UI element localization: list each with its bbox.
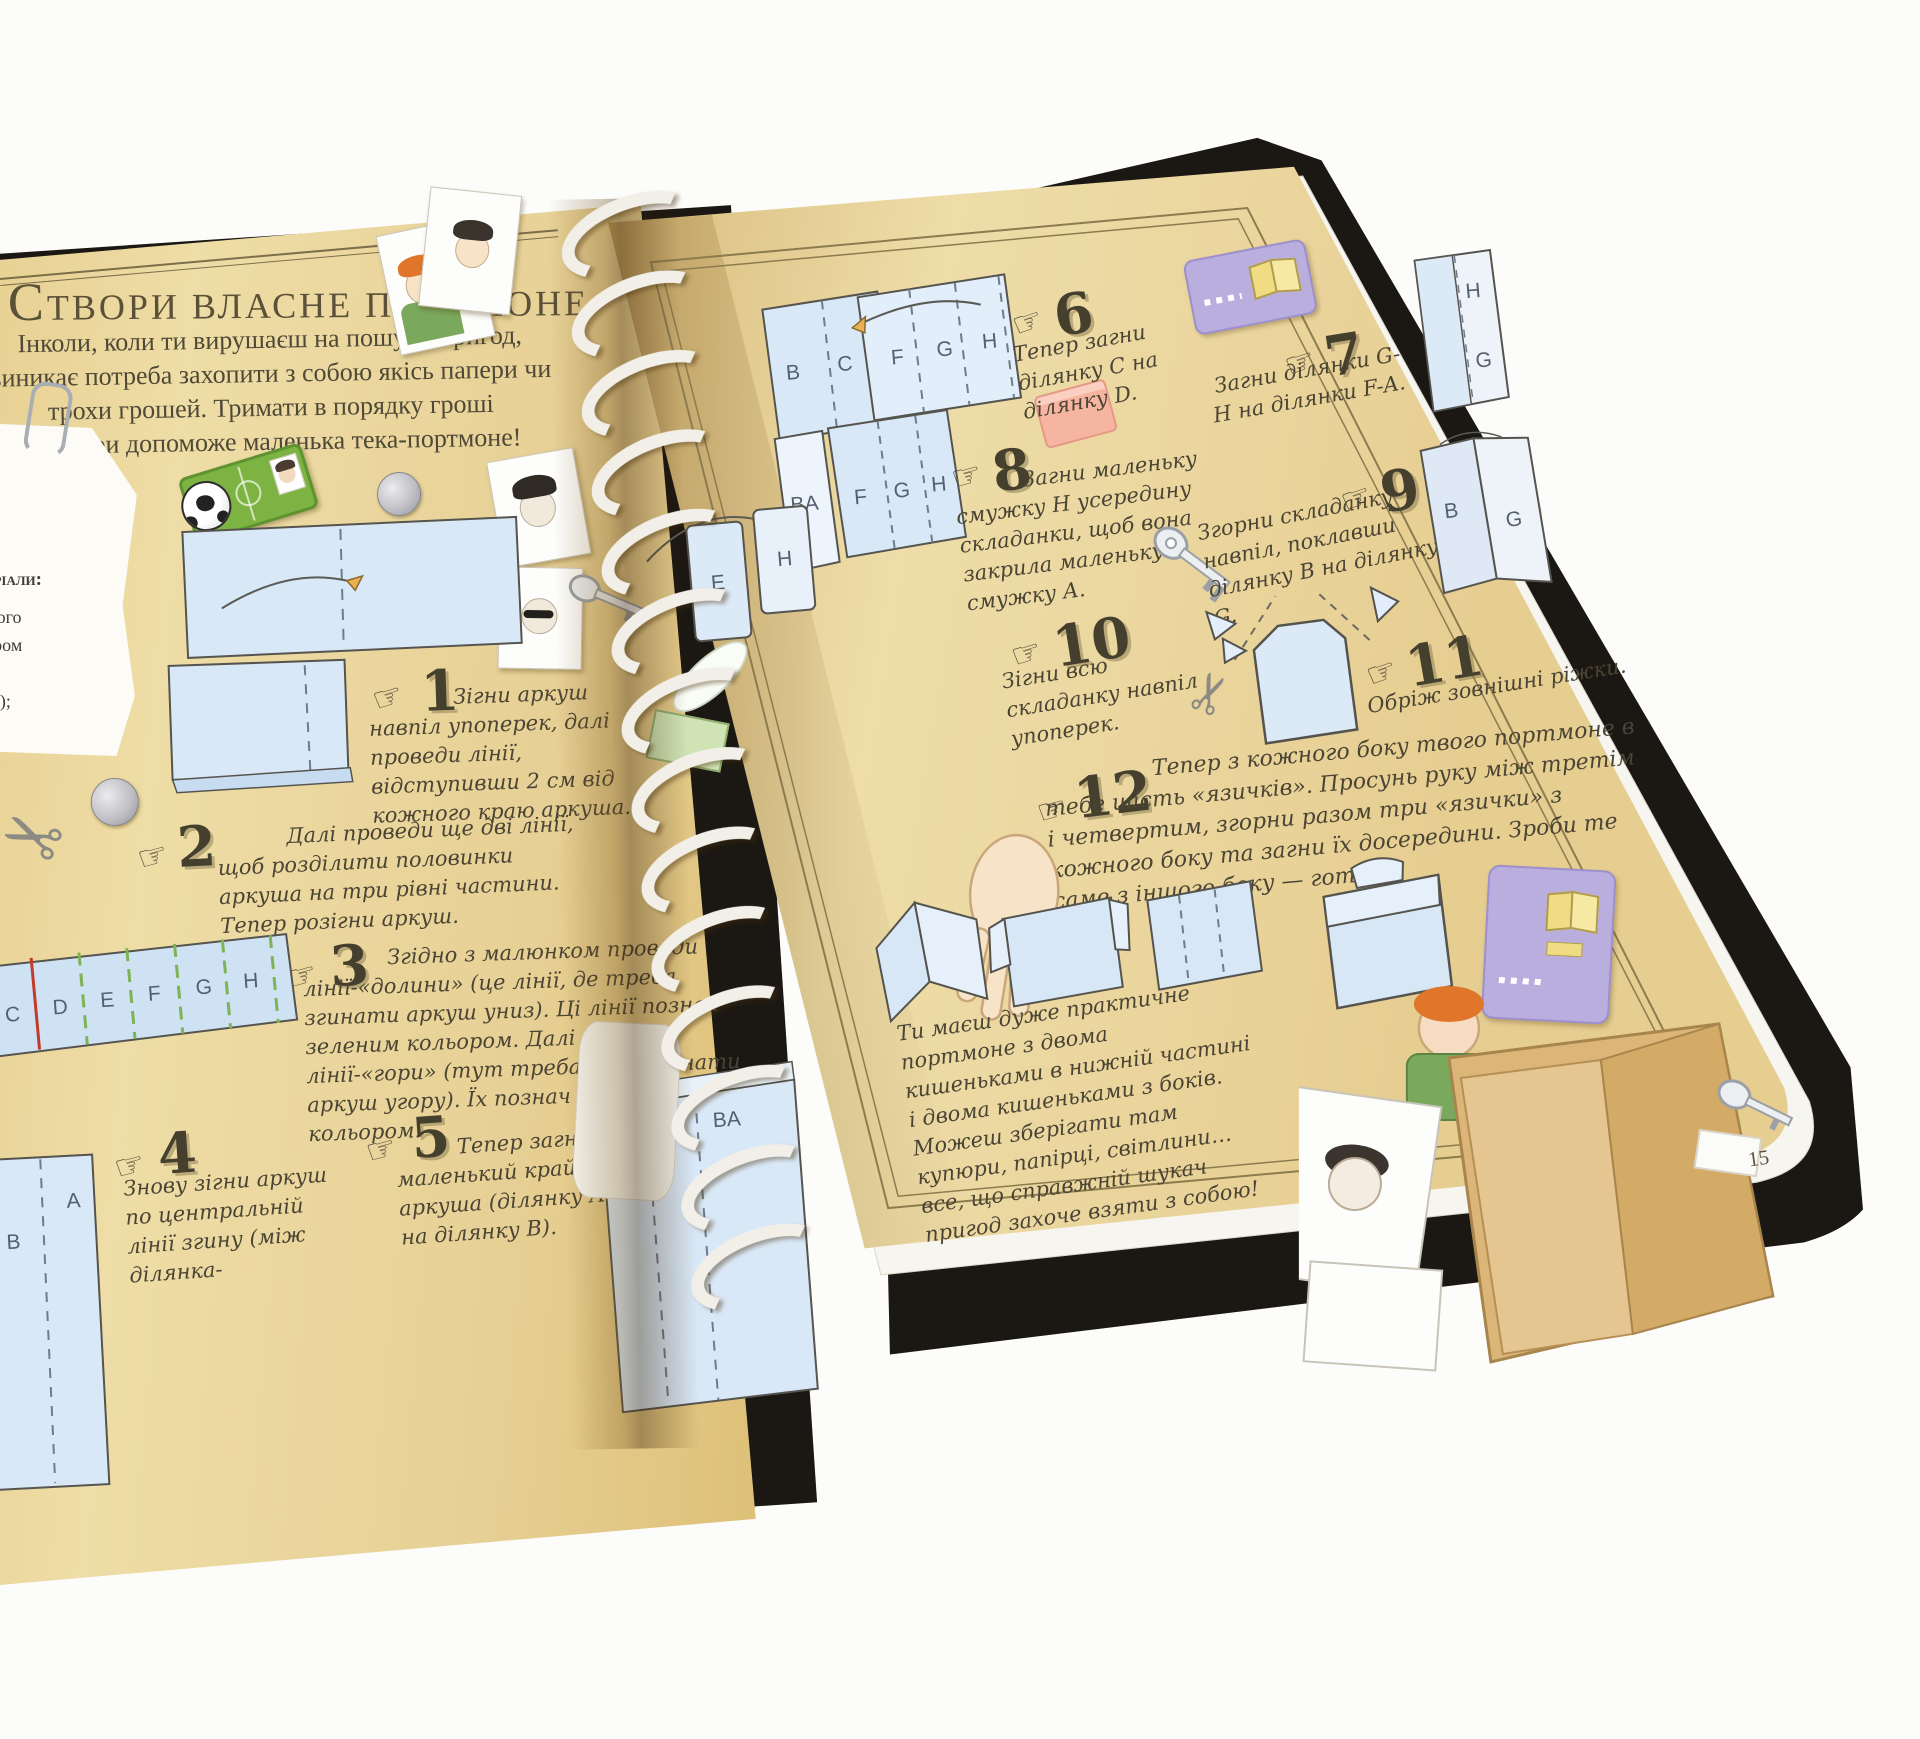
materials-note-paper: Матеріали: товстого розміром (чи 1 посте…	[0, 421, 137, 756]
step4-text: Знову зігни аркуш по центральній лінії з…	[122, 1160, 345, 1291]
outro-paragraph: Ти маєш дуже практичне портмоне з двома …	[895, 971, 1274, 1249]
yellow-strip-doodle	[1546, 941, 1583, 957]
step2-number: 2	[176, 818, 218, 876]
step1-diagram	[178, 511, 529, 667]
strip-letter: D	[52, 996, 69, 1020]
sunglasses-icon	[523, 610, 553, 619]
diagram-letter: B	[6, 1230, 21, 1254]
photo-card	[418, 186, 522, 315]
materials-line: розміром	[0, 635, 22, 656]
diagram-letter: H	[930, 472, 947, 496]
ball-patch	[216, 509, 231, 524]
strip-letter: G	[195, 975, 213, 999]
card-dots	[1204, 293, 1242, 306]
book-photo: { "book": { "title": "Створи власне порт…	[0, 0, 1920, 1280]
diagram-letter: G	[936, 337, 954, 361]
diagram-letter: B	[785, 361, 801, 385]
diagram-letter: G	[893, 479, 911, 503]
materials-line: товстого	[0, 607, 22, 628]
step2-diagram	[164, 655, 364, 797]
diagram-letter: H	[776, 547, 793, 571]
open-book-doodle	[1570, 891, 1600, 934]
diagram-letter: B	[1443, 499, 1460, 524]
strip-letter: H	[243, 969, 260, 993]
fold-lines-strip-diagram: C D E F G H	[0, 931, 305, 1087]
diagram-letter: A	[66, 1189, 81, 1213]
open-book: Створи власне портмоне Інколи, коли ти в…	[0, 21, 1920, 1724]
player-photo	[269, 453, 306, 496]
page-number: 15	[1747, 1145, 1771, 1173]
diagram-letter: G	[1504, 507, 1523, 532]
open-book-doodle	[1269, 258, 1302, 293]
diagram-letter: H	[1464, 279, 1481, 303]
diagram-letter: C	[836, 352, 853, 376]
diagram-letter: H	[981, 329, 998, 353]
materials-line: постер);	[0, 691, 11, 712]
materials-heading: Матеріали:	[0, 569, 42, 591]
strip-letter: F	[147, 982, 161, 1006]
step9-diagram: B G	[1409, 422, 1564, 612]
step1-text: Зігни аркуш навпіл упоперек, далі провед…	[368, 676, 668, 831]
step4-diagram: B A	[0, 1144, 120, 1499]
step2-text: Далі проведи ще дві лінії, щоб розділити…	[216, 809, 591, 941]
diagram-letter: G	[1475, 348, 1493, 372]
diagram-letter: F	[890, 346, 905, 370]
field-circle	[232, 477, 264, 509]
strip-letter: E	[99, 988, 115, 1012]
step7-corner-diagram: H G	[1396, 244, 1526, 428]
kraft-wallet-scene	[1299, 966, 1809, 1386]
ball-patch	[195, 493, 217, 514]
strip-letter: C	[4, 1003, 21, 1027]
